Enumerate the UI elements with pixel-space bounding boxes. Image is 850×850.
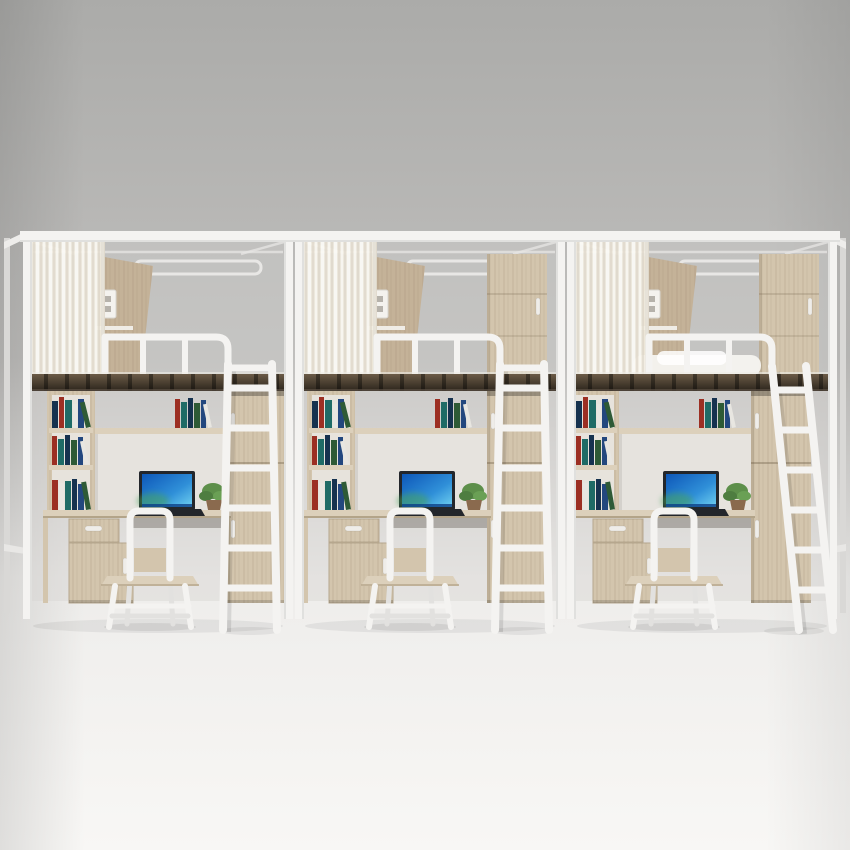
bunk-bed-scene (0, 0, 850, 850)
product-photo-stage (0, 0, 850, 850)
bunk-unit-body (292, 231, 568, 635)
bunk-unit-middle (292, 231, 568, 635)
bunk-unit-right (564, 231, 840, 635)
bunk-unit-body (20, 231, 296, 635)
bunk-unit-left (20, 231, 296, 635)
